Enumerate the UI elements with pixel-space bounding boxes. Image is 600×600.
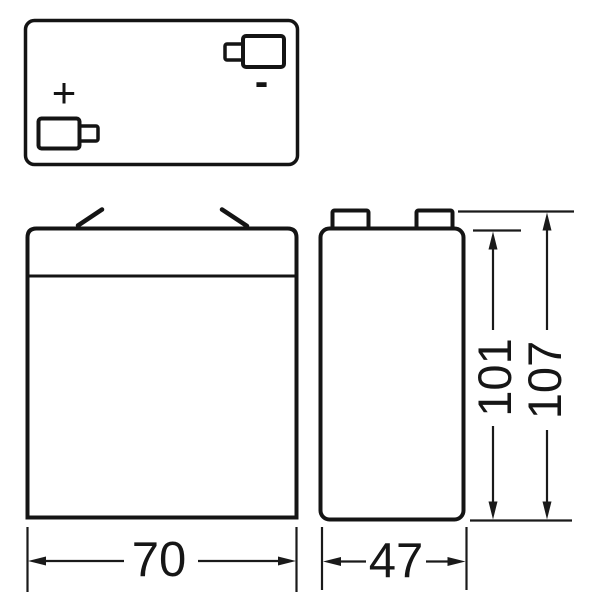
arrowhead-down-icon: [489, 502, 498, 520]
dimension-depth: 47: [322, 527, 467, 590]
front-terminal-right-mark: [222, 210, 247, 227]
positive-polarity-label: +: [52, 69, 77, 116]
arrowhead-up-icon: [543, 213, 552, 231]
overall-height-dimension-label: 107: [518, 341, 571, 419]
arrowhead-left-icon: [28, 557, 46, 566]
arrowhead-down-icon: [543, 502, 552, 520]
depth-dimension-label: 47: [369, 534, 424, 588]
arrowhead-up-icon: [489, 232, 498, 250]
top-view: - +: [26, 21, 298, 165]
dimension-width: 70: [28, 527, 297, 592]
side-view-outline: [321, 229, 464, 520]
negative-polarity-label: -: [255, 60, 268, 104]
side-view: [321, 211, 464, 520]
arrowhead-right-icon: [448, 557, 466, 566]
arrowhead-right-icon: [278, 557, 296, 566]
battery-dimension-drawing: - + 70: [0, 0, 600, 600]
body-height-dimension-label: 101: [468, 338, 521, 416]
front-view: [28, 210, 297, 518]
diagram-canvas: - + 70: [0, 0, 600, 600]
front-terminal-left-mark: [78, 210, 102, 226]
dimension-body-height: 101: [468, 231, 521, 520]
front-view-outline: [28, 229, 297, 518]
positive-terminal-body: [39, 119, 80, 149]
arrowhead-left-icon: [323, 557, 341, 566]
width-dimension-label: 70: [132, 533, 187, 587]
